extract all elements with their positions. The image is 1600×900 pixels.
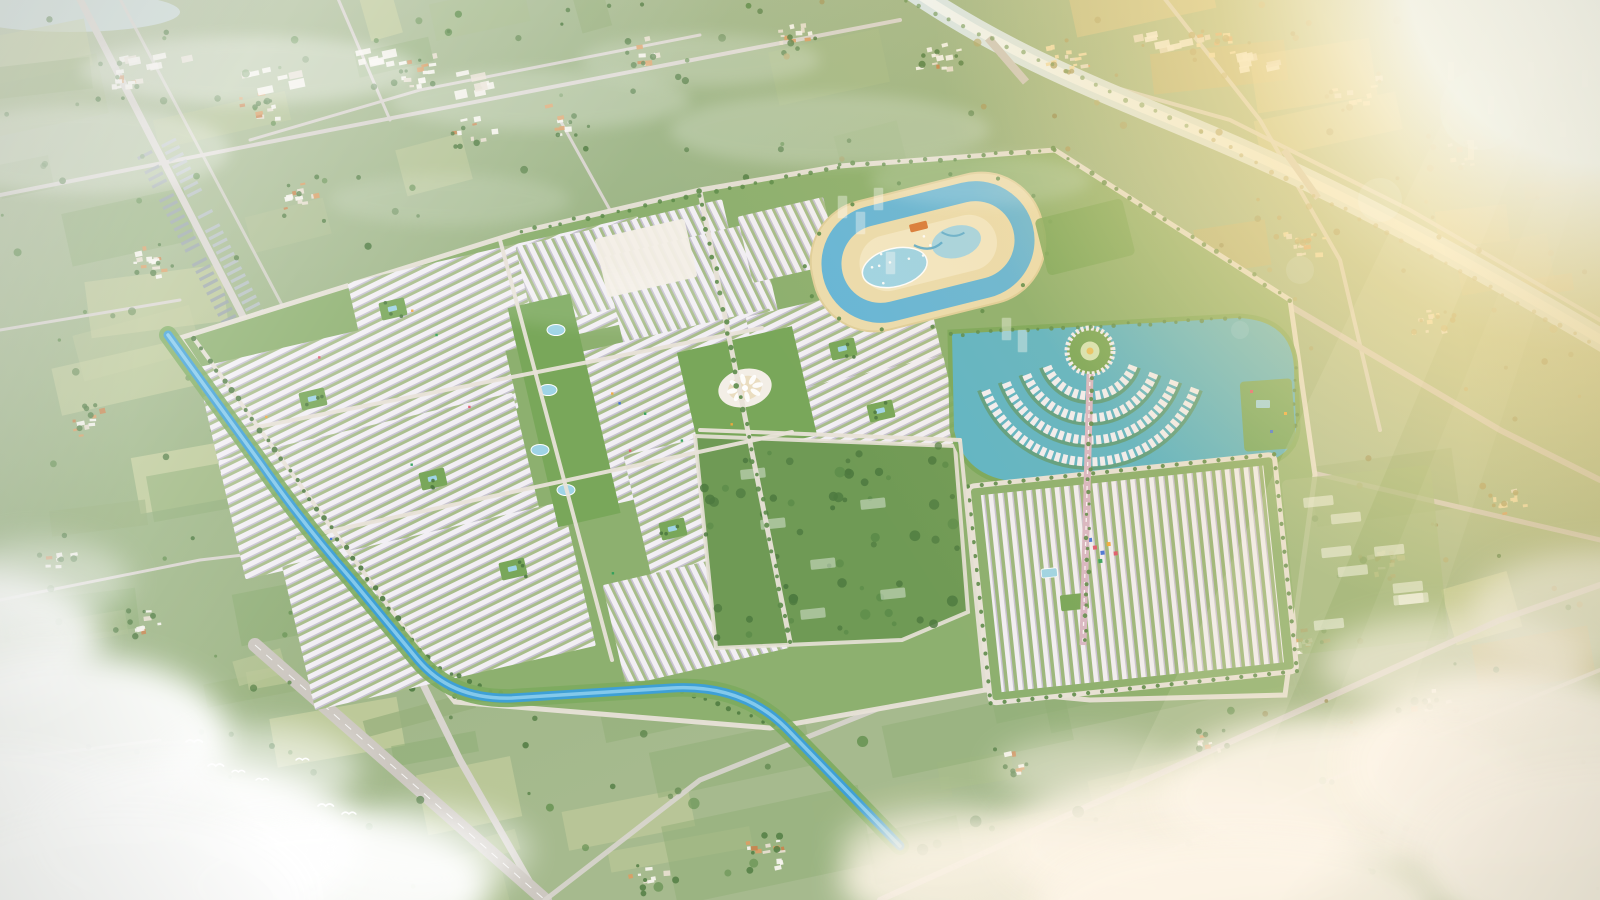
atmosphere: clouds [0,0,1600,900]
vignette [0,0,1600,900]
aerial-render: Golden-hour aerial render of a lakeside … [0,0,1600,900]
scene: Golden-hour aerial render of a lakeside … [0,0,1600,900]
